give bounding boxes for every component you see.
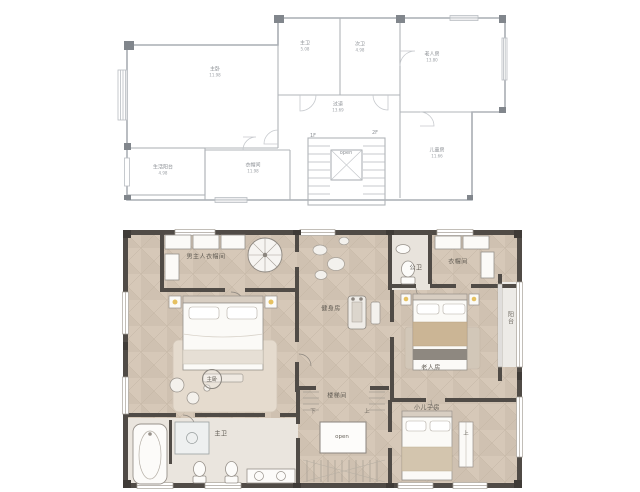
room-label-stair-room: 楼梯间 — [327, 392, 347, 399]
room-label-public-bath: 公卫 — [409, 264, 422, 271]
room-label-balcony: 阳台 — [506, 311, 515, 325]
upper-floor-plan — [115, 8, 515, 218]
upper-windows — [118, 16, 507, 203]
room-label-cloak-room-upper: 衣帽间 11.98 — [245, 162, 260, 173]
shower-icon — [175, 422, 209, 454]
room-label-master-bedroom: 主卧 — [202, 369, 222, 389]
room-label-service-balcony-upper: 生活阳台 4.98 — [153, 164, 173, 175]
stair-mark-2f: 2F — [372, 130, 378, 136]
room-label-second-bath-upper: 次卫 4.98 — [355, 41, 365, 52]
public-bath-sink-icon — [396, 245, 410, 254]
spiral-stair-icon — [248, 238, 282, 272]
stair-up-mark: 上 — [364, 407, 370, 415]
elder-bed-icon — [401, 294, 479, 370]
upper-columns — [124, 15, 506, 200]
room-label-young-son-room: 小儿子房 — [414, 404, 440, 411]
room-label-master-bath: 主卫 — [214, 430, 227, 437]
room-label-master-bedroom-upper: 主卧 11.98 — [209, 66, 220, 77]
stair-down-mark: 下 — [310, 407, 316, 415]
stair-open-label-upper: open — [340, 150, 352, 156]
room-label-closet: 衣帽间 — [448, 258, 468, 265]
room-label-elder-room: 老人房 — [421, 364, 441, 371]
vanity-sinks-icon — [247, 469, 295, 483]
stair-open-label-lower: open — [335, 434, 349, 440]
upper-interior-walls — [127, 18, 505, 205]
upper-outer-walls — [127, 18, 505, 200]
bathtub-icon — [133, 424, 167, 484]
stair-mark-1f: 1F — [310, 133, 316, 139]
master-bed-icon — [169, 296, 277, 382]
room-label-corridor-upper: 过道 13.69 — [332, 101, 343, 112]
floor-plan-canvas: 主卧 11.98 主卫 5.08 次卫 4.98 老人房 13.80 过道 13… — [0, 0, 640, 492]
room-label-kids-room-upper: 儿童房 11.66 — [429, 147, 444, 158]
room-label-mens-closet: 男主人衣帽间 — [186, 253, 225, 260]
stair-up-mark-secondary: 上 — [463, 429, 469, 437]
room-label-gym: 健身房 — [321, 305, 341, 312]
room-label-elder-room-upper: 老人房 13.80 — [424, 51, 439, 62]
room-label-master-bath-upper: 主卫 5.08 — [300, 40, 310, 51]
